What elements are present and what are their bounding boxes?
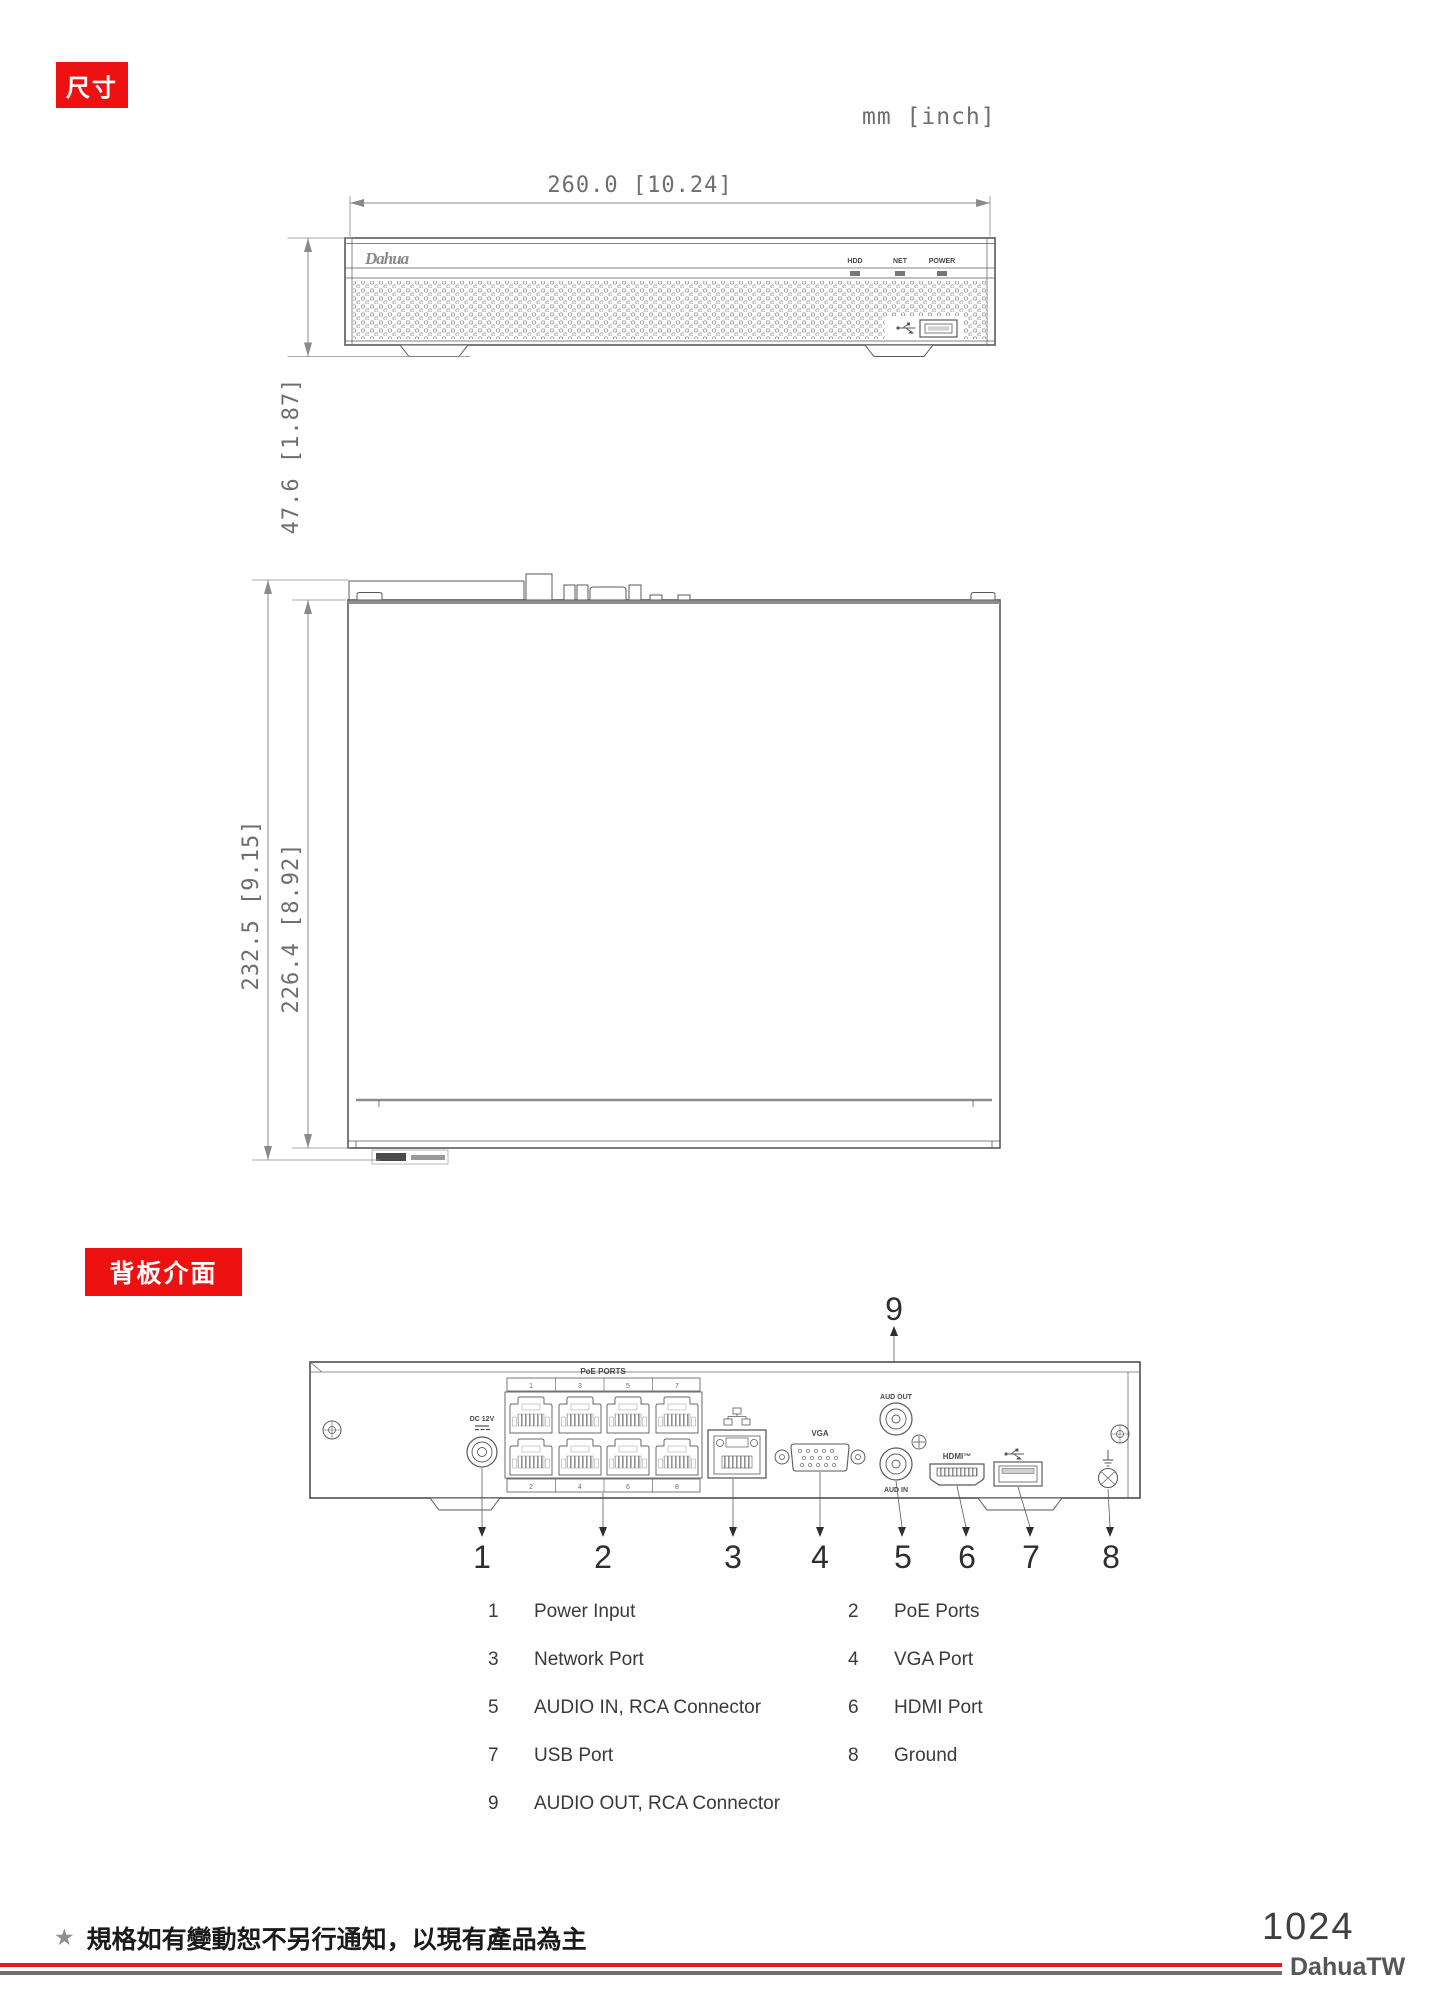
poe-ports-block: PoE PORTS 1 3 5 7 bbox=[505, 1367, 702, 1492]
dim-arrow-right bbox=[976, 199, 990, 207]
callout-9: 9 bbox=[885, 1291, 903, 1327]
footer-note: ★ 規格如有變動恕不另行通知，以現有產品為主 bbox=[54, 1920, 587, 1956]
led-label-net: NET bbox=[893, 258, 908, 265]
poe-num-8: 8 bbox=[675, 1484, 679, 1491]
callout-arrowheads bbox=[478, 1527, 1114, 1537]
hdmi-label: HDMI™ bbox=[943, 1452, 971, 1461]
top-rear-connectors bbox=[349, 574, 995, 600]
audio-in-label: AUD IN bbox=[884, 1487, 908, 1494]
legend-num: 2 bbox=[848, 1601, 894, 1623]
footer-rule-gray bbox=[0, 1971, 1282, 1975]
legend-label: USB Port bbox=[534, 1745, 848, 1767]
power-led bbox=[937, 271, 947, 276]
star-icon: ★ bbox=[54, 1925, 75, 1951]
hdd-led bbox=[850, 271, 860, 276]
poe-num-7: 7 bbox=[675, 1383, 679, 1390]
legend-label: Ground bbox=[894, 1745, 1088, 1767]
front-foot-left bbox=[400, 345, 468, 357]
poe-num-6: 6 bbox=[626, 1484, 630, 1491]
page-number: 1024 bbox=[1262, 1906, 1355, 1949]
audio-in-rca: AUD IN bbox=[880, 1448, 912, 1494]
legend-label: AUDIO OUT, RCA Connector bbox=[534, 1793, 848, 1815]
legend-num: 9 bbox=[488, 1793, 534, 1815]
chassis-screw-left-icon bbox=[323, 1421, 341, 1439]
poe-ports-label: PoE PORTS bbox=[580, 1367, 626, 1376]
legend-row: 3 Network Port 4 VGA Port bbox=[488, 1636, 1088, 1684]
callout-3: 3 bbox=[724, 1539, 742, 1575]
front-height-dim-label: 47.6 [1.87] bbox=[279, 378, 304, 535]
footer-note-text: 規格如有變動恕不另行通知，以現有產品為主 bbox=[87, 1920, 587, 1956]
led-label-power: POWER bbox=[929, 258, 955, 265]
callout-2: 2 bbox=[594, 1539, 612, 1575]
port-legend: 1 Power Input 2 PoE Ports 3 Network Port… bbox=[488, 1588, 1088, 1828]
front-view-drawing: 260.0 [10.24] Dahua HDD NET POWER bbox=[279, 173, 995, 534]
legend-row: 9 AUDIO OUT, RCA Connector bbox=[488, 1780, 1088, 1828]
legend-row: 7 USB Port 8 Ground bbox=[488, 1732, 1088, 1780]
legend-num: 1 bbox=[488, 1601, 534, 1623]
ground-mark-icon bbox=[912, 1435, 926, 1449]
poe-num-3: 3 bbox=[578, 1383, 582, 1390]
led-label-hdd: HDD bbox=[847, 258, 862, 265]
dahua-front-logo: Dahua bbox=[364, 249, 410, 268]
callout-8: 8 bbox=[1102, 1539, 1120, 1575]
top-logo-plate bbox=[372, 1150, 448, 1164]
back-foot-right bbox=[978, 1498, 1062, 1510]
front-foot-right bbox=[865, 345, 933, 357]
net-led bbox=[895, 271, 905, 276]
legend-num: 4 bbox=[848, 1649, 894, 1671]
top-corner-tab-right bbox=[971, 593, 995, 601]
dim-arrow-left bbox=[350, 199, 364, 207]
legend-label: AUDIO IN, RCA Connector bbox=[534, 1697, 848, 1719]
top-view-drawing: 232.5 [9.15] 226.4 [8.92] bbox=[239, 574, 1000, 1164]
back-panel-drawing: 9 DC 12V bbox=[310, 1291, 1140, 1575]
vga-label: VGA bbox=[811, 1429, 829, 1438]
callout-6: 6 bbox=[958, 1539, 976, 1575]
dc-label: DC 12V bbox=[470, 1416, 495, 1423]
top-power-block bbox=[526, 574, 552, 600]
chassis-screw-right-icon bbox=[1111, 1425, 1129, 1443]
callout-1: 1 bbox=[473, 1539, 491, 1575]
legend-num: 7 bbox=[488, 1745, 534, 1767]
poe-num-1: 1 bbox=[529, 1383, 533, 1390]
audio-out-rca: AUD OUT bbox=[880, 1394, 913, 1435]
legend-label: Power Input bbox=[534, 1601, 848, 1623]
poe-num-2: 2 bbox=[529, 1484, 533, 1491]
legend-num: 8 bbox=[848, 1745, 894, 1767]
top-outer-depth-label: 232.5 [9.15] bbox=[239, 820, 264, 991]
legend-num: 5 bbox=[488, 1697, 534, 1719]
poe-num-5: 5 bbox=[626, 1383, 630, 1390]
front-width-dim-label: 260.0 [10.24] bbox=[547, 173, 732, 198]
top-corner-tab-left bbox=[357, 593, 382, 601]
section-badge-back-panel: 背板介面 bbox=[85, 1248, 242, 1296]
legend-label: PoE Ports bbox=[894, 1601, 1088, 1623]
audio-out-label: AUD OUT bbox=[880, 1394, 913, 1401]
callout-7: 7 bbox=[1022, 1539, 1040, 1575]
legend-num: 3 bbox=[488, 1649, 534, 1671]
callout-4: 4 bbox=[811, 1539, 829, 1575]
back-foot-left bbox=[430, 1498, 500, 1510]
brand-logo-text: DahuaTW bbox=[1290, 1953, 1405, 1982]
datasheet-page: 尺寸 mm [inch] 260.0 [10.24] bbox=[0, 0, 1440, 2003]
callout-numbers: 1 2 3 4 5 6 7 8 bbox=[473, 1539, 1120, 1575]
legend-num: 6 bbox=[848, 1697, 894, 1719]
legend-row: 1 Power Input 2 PoE Ports bbox=[488, 1588, 1088, 1636]
legend-row: 5 AUDIO IN, RCA Connector 6 HDMI Port bbox=[488, 1684, 1088, 1732]
legend-label: VGA Port bbox=[894, 1649, 1088, 1671]
top-chassis bbox=[348, 600, 1000, 1148]
top-vga-block bbox=[590, 587, 626, 600]
poe-num-4: 4 bbox=[578, 1484, 582, 1491]
legend-label: Network Port bbox=[534, 1649, 848, 1671]
legend-label: HDMI Port bbox=[894, 1697, 1088, 1719]
top-inner-depth-label: 226.4 [8.92] bbox=[279, 843, 304, 1014]
footer-rule-red bbox=[0, 1963, 1282, 1967]
callout-5: 5 bbox=[894, 1539, 912, 1575]
